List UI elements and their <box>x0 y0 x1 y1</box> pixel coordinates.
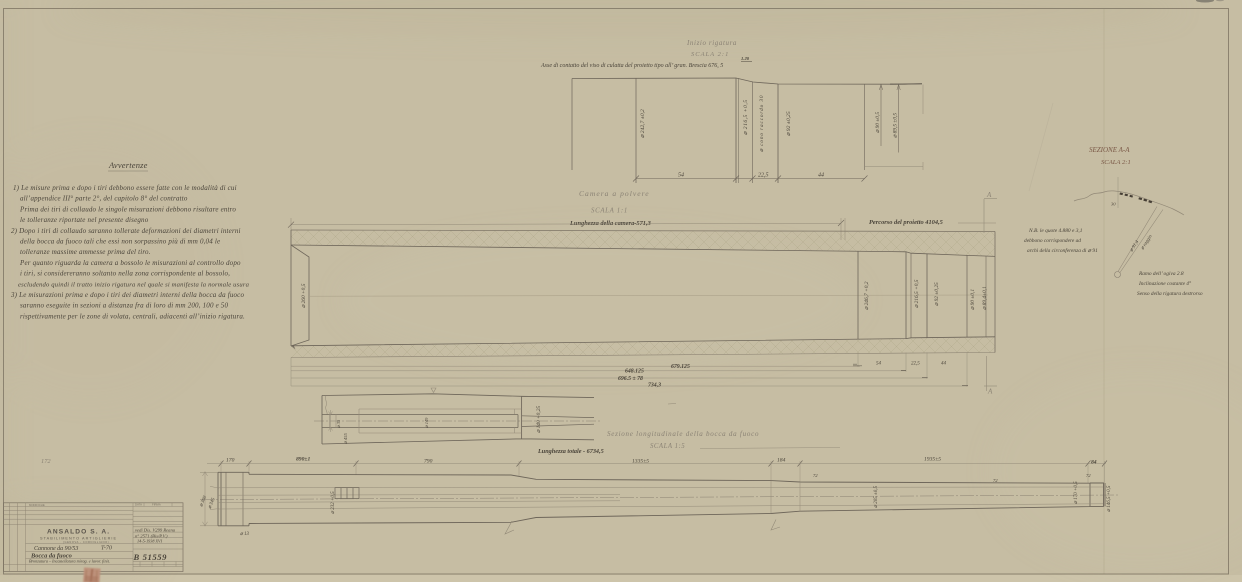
svg-text:1.20: 1.20 <box>741 56 750 61</box>
svg-text:T-70: T-70 <box>101 546 112 552</box>
svg-text:1935±5: 1935±5 <box>924 457 941 463</box>
svg-text:Senso della rigatura destror: Senso della rigatura destrorso <box>1137 291 1203 297</box>
svg-text:30: 30 <box>1111 202 1116 207</box>
svg-text:tolleranze massime ammesse pr: tolleranze massime ammesse prima del tir… <box>20 248 151 256</box>
svg-text:⌀ 89,4±0,1: ⌀ 89,4±0,1 <box>982 286 988 310</box>
svg-text:N.B. le quote 4.880 e 3,1: N.B. le quote 4.880 e 3,1 <box>1028 228 1083 234</box>
svg-text:⌀ 455: ⌀ 455 <box>343 432 348 444</box>
svg-text:679.125: 679.125 <box>671 364 690 370</box>
svg-text:648.125: 648.125 <box>625 369 644 375</box>
svg-text:B 51559: B 51559 <box>133 552 168 562</box>
svg-text:170: 170 <box>226 458 235 464</box>
svg-text:⌀ 92 ±0,25: ⌀ 92 ±0,25 <box>934 282 940 306</box>
svg-text:54: 54 <box>876 362 882 367</box>
svg-text:⌀ 89,5 ±0,5: ⌀ 89,5 ±0,5 <box>893 113 899 138</box>
svg-text:44: 44 <box>941 362 947 367</box>
svg-text:84: 84 <box>1091 460 1097 466</box>
svg-text:archi della circonferenza di: archi della circonferenza di ⌀ 91 <box>1027 247 1098 254</box>
svg-text:all’appendice III° parte 2°,: all’appendice III° parte 2°, del capitol… <box>20 195 188 203</box>
svg-text:Avvertenze: Avvertenze <box>108 160 148 170</box>
svg-text:22,5: 22,5 <box>911 362 920 367</box>
svg-text:Per quanto riguarda la camera: Per quanto riguarda la camera a bossolo … <box>19 259 241 267</box>
svg-text:1) Le misure prima e dopo i ti: 1) Le misure prima e dopo i tiri debbono… <box>13 184 237 192</box>
svg-text:SCALA 2:1: SCALA 2:1 <box>1101 159 1131 166</box>
svg-text:⌀ 146,5 +0,5: ⌀ 146,5 +0,5 <box>1107 485 1112 512</box>
svg-text:⌀ 260 +0,5: ⌀ 260 +0,5 <box>301 283 307 308</box>
svg-text:A: A <box>986 191 992 199</box>
svg-text:(GENOVA - CORNIGLIANO): (GENOVA - CORNIGLIANO) <box>63 540 109 544</box>
svg-text:790: 790 <box>424 459 433 465</box>
svg-text:rispettivamente per le zone di: rispettivamente per le zone di volata, c… <box>20 312 245 320</box>
svg-text:⌀ 232 +0,5: ⌀ 232 +0,5 <box>331 491 336 514</box>
svg-text:Camera a polvere: Camera a polvere <box>579 189 650 198</box>
svg-text:734,3: 734,3 <box>648 383 661 389</box>
svg-text:Lunghezza totale - 6734,5: Lunghezza totale - 6734,5 <box>537 448 604 455</box>
svg-text:SCALA 1:5: SCALA 1:5 <box>650 443 685 450</box>
svg-text:54: 54 <box>678 172 684 179</box>
svg-text:FIRMA: FIRMA <box>152 503 161 507</box>
svg-text:della bocca da fuoco tali che: della bocca da fuoco tali che essi non s… <box>20 238 220 246</box>
svg-text:⌀ 170 +0,5: ⌀ 170 +0,5 <box>1074 481 1079 504</box>
svg-text:72: 72 <box>993 478 998 483</box>
svg-text:A: A <box>987 388 993 396</box>
svg-text:72: 72 <box>813 473 818 478</box>
svg-text:3) Le misurazioni prima e dopo: 3) Le misurazioni prima e dopo i tiri de… <box>10 291 244 299</box>
svg-text:44: 44 <box>818 172 824 179</box>
svg-text:⌀ 149: ⌀ 149 <box>424 417 429 428</box>
svg-text:SCALA 1:1: SCALA 1:1 <box>591 208 628 215</box>
svg-text:SCALA 2:1: SCALA 2:1 <box>691 51 729 58</box>
svg-text:172: 172 <box>41 458 51 465</box>
svg-text:⌀ 205 ±0,5: ⌀ 205 ±0,5 <box>874 485 879 508</box>
svg-text:⌀ 13: ⌀ 13 <box>240 532 249 537</box>
svg-text:14-5-1938 XVI: 14-5-1938 XVI <box>137 539 163 544</box>
svg-text:vedi Dis. V299 Reana: vedi Dis. V299 Reana <box>135 528 176 533</box>
svg-text:⌀ 140 +0,25: ⌀ 140 +0,25 <box>536 406 542 433</box>
svg-text:⌀ cono raccordo 30: ⌀ cono raccordo 30 <box>759 95 765 152</box>
svg-text:le tolleranze riportate nel pr: le tolleranze riportate nel presente dis… <box>20 216 149 224</box>
svg-text:2) Dopo i tiri di collaudo sar: 2) Dopo i tiri di collaudo saranno tolle… <box>11 227 241 235</box>
svg-text:saranno eseguite in sezioni a: saranno eseguite in sezioni a distanza f… <box>20 302 228 310</box>
svg-text:DATA: DATA <box>135 503 142 507</box>
svg-text:696.5 ± 78: 696.5 ± 78 <box>618 376 643 382</box>
svg-text:⌀ 90 ±0,5: ⌀ 90 ±0,5 <box>875 112 881 133</box>
svg-text:i tiri, si considereranno solt: i tiri, si considereranno soltanto nella… <box>20 270 230 278</box>
svg-text:184: 184 <box>777 458 786 464</box>
svg-text:72: 72 <box>1086 473 1091 478</box>
svg-text:⌀ 216,5 +0,5: ⌀ 216,5 +0,5 <box>914 279 920 308</box>
svg-text:890±1: 890±1 <box>296 457 310 463</box>
svg-text:Lunghezza della camera-571,3: Lunghezza della camera-571,3 <box>569 220 652 227</box>
svg-text:⌀ 216,5 +0,5: ⌀ 216,5 +0,5 <box>743 99 749 135</box>
svg-text:Bronzatura – Incastellatura: Bronzatura – Incastellatura mirag. e lav… <box>29 559 110 564</box>
svg-text:⌀ 246,7 +0,2: ⌀ 246,7 +0,2 <box>864 281 870 310</box>
svg-text:Sezione longitudinale della: Sezione longitudinale della bocca da fuo… <box>607 430 759 438</box>
svg-text:STABILIMENTO ARTIGLIERIE: STABILIMENTO ARTIGLIERIE <box>40 537 117 541</box>
svg-text:escludendo quindi il tratto: escludendo quindi il tratto inizio rigat… <box>18 281 250 288</box>
svg-text:Prima dei tiri di collaudo le: Prima dei tiri di collaudo le singole mi… <box>19 205 236 213</box>
svg-text:⌀ 35: ⌀ 35 <box>336 419 341 428</box>
svg-text:⌀ 242,7 ±0,2: ⌀ 242,7 ±0,2 <box>640 109 646 138</box>
svg-text:MODIFICHE: MODIFICHE <box>29 503 45 507</box>
svg-text:debbono corrispondere ad: debbono corrispondere ad <box>1024 238 1081 244</box>
svg-text:1335±5: 1335±5 <box>632 459 649 465</box>
svg-text:⌀ 90 ±0,1: ⌀ 90 ±0,1 <box>970 289 976 310</box>
svg-text:SEZIONE A-A: SEZIONE A-A <box>1089 146 1130 154</box>
svg-text:Percorso del proietto 4104,5: Percorso del proietto 4104,5 <box>869 219 944 226</box>
svg-text:Inizio rigatura: Inizio rigatura <box>686 39 737 47</box>
svg-text:Asse di contatto del viso d: Asse di contatto del viso di culatta del… <box>540 63 723 69</box>
svg-text:Ramo dell’ ogiva 2.8: Ramo dell’ ogiva 2.8 <box>1138 271 1184 277</box>
svg-text:Inclinazione costante 4°: Inclinazione costante 4° <box>1138 280 1192 287</box>
svg-text:Cannone da 90/53: Cannone da 90/53 <box>34 546 78 552</box>
svg-text:⌀ 92 ±0,25: ⌀ 92 ±0,25 <box>786 111 792 136</box>
svg-text:ANSALDO S. A.: ANSALDO S. A. <box>47 529 110 536</box>
svg-text:22,5: 22,5 <box>758 173 769 179</box>
